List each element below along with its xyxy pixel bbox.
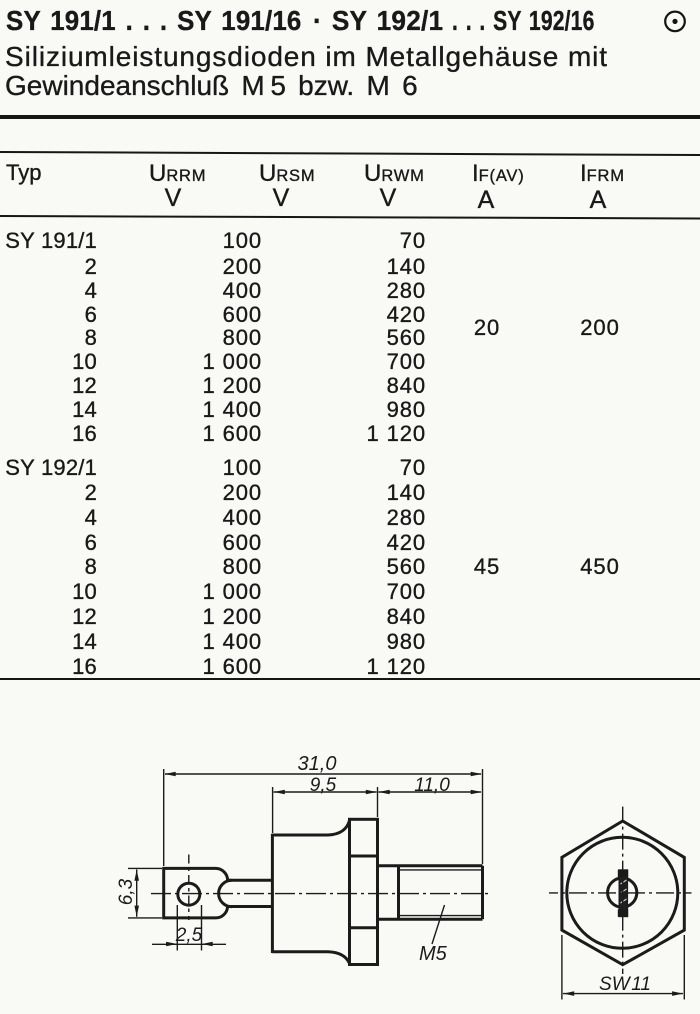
svg-text:6,3: 6,3 <box>116 878 137 905</box>
svg-text:M5: M5 <box>419 943 448 965</box>
svg-text:2,5: 2,5 <box>175 925 203 946</box>
svg-text:31,0: 31,0 <box>298 753 337 775</box>
svg-text:SW 11: SW 11 <box>599 974 651 995</box>
svg-text:9,5: 9,5 <box>310 775 337 796</box>
svg-text:11,0: 11,0 <box>414 775 450 796</box>
